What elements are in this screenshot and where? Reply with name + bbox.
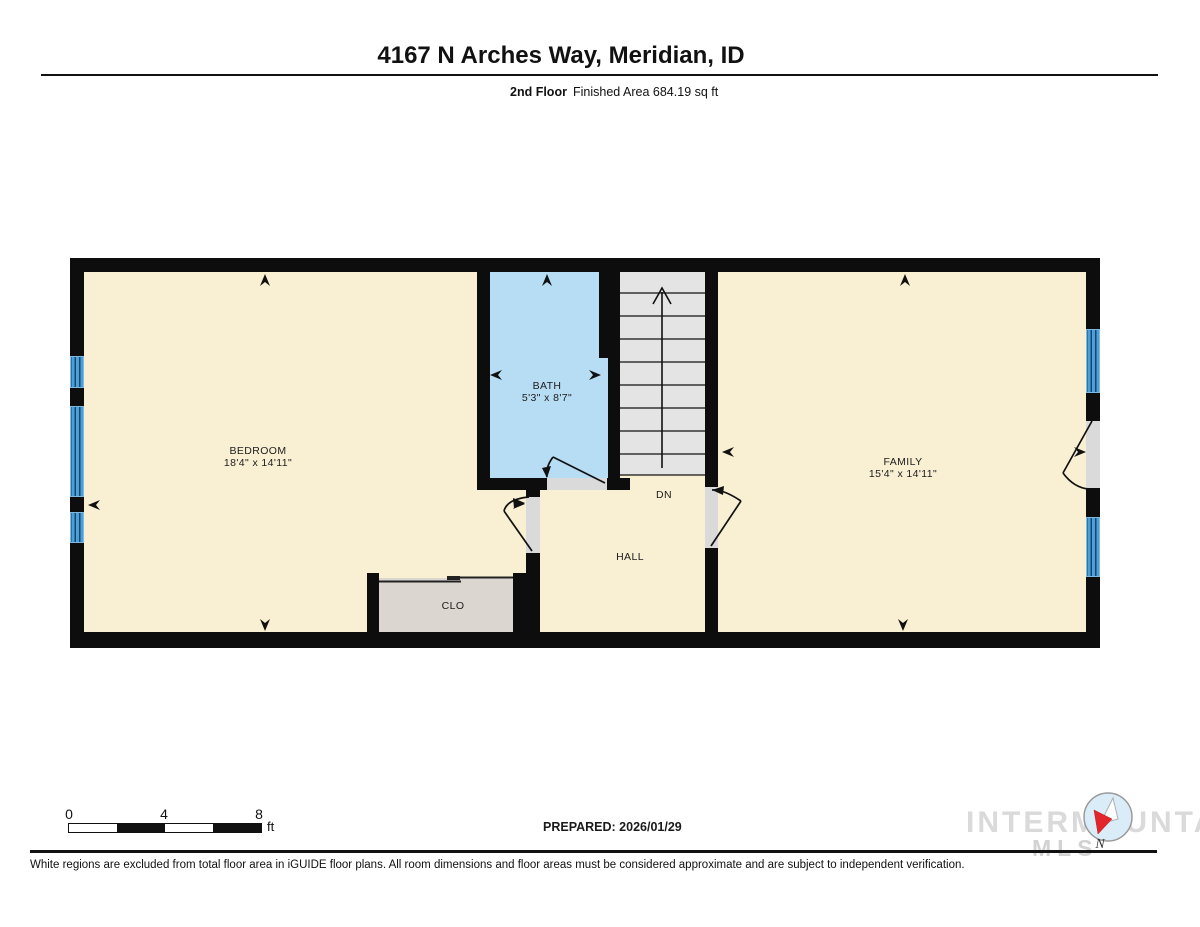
title-divider — [41, 74, 1158, 76]
stairwell-area — [620, 272, 705, 475]
bath-door-opening — [547, 478, 607, 490]
wall-exterior-top — [70, 258, 1100, 272]
bedroom-name: BEDROOM — [224, 446, 292, 458]
wall-closet-left — [367, 573, 379, 632]
bath-dims: 5'3" x 8'7" — [522, 393, 572, 405]
family-dims: 15'4" x 14'11" — [869, 469, 937, 481]
prepared-date-label: PREPARED: 2026/01/29 — [543, 820, 682, 834]
window-bedroom-left-3 — [70, 512, 84, 543]
wall-bedroom-bath — [477, 272, 490, 490]
scale-tick-8: 8 — [255, 806, 263, 822]
window-family-right-2 — [1086, 517, 1100, 577]
family-label: FAMILY 15'4" x 14'11" — [869, 457, 937, 480]
wall-bath-stairs-lower — [608, 358, 620, 490]
window-family-right-1 — [1086, 329, 1100, 393]
wall-closet-right — [513, 573, 526, 632]
family-name: FAMILY — [869, 457, 937, 469]
bedroom-door-opening — [526, 497, 540, 553]
window-bedroom-left-1 — [70, 356, 84, 388]
bedroom-label: BEDROOM 18'4" x 14'11" — [224, 446, 292, 469]
family-door-opening — [705, 487, 718, 548]
bath-label: BATH 5'3" x 8'7" — [522, 381, 572, 404]
bedroom-dims: 18'4" x 14'11" — [224, 458, 292, 470]
wall-exterior-bottom — [70, 632, 1100, 648]
scale-tick-4: 4 — [160, 806, 168, 822]
footer-divider — [30, 850, 1157, 853]
wall-stairs-family — [705, 272, 718, 632]
hall-label: HALL — [616, 552, 644, 564]
finished-area-label: Finished Area 684.19 sq ft — [573, 85, 718, 99]
exterior-door-opening — [1086, 421, 1100, 488]
stairs-dn-label: DN — [656, 490, 672, 502]
floor-label: 2nd Floor — [510, 85, 567, 99]
bath-name: BATH — [522, 381, 572, 393]
scale-tick-0: 0 — [65, 806, 73, 822]
scale-bar — [68, 823, 262, 833]
bath-room-area — [490, 272, 608, 478]
floorplan-page: 4167 N Arches Way, Meridian, ID 2nd Floo… — [0, 0, 1200, 927]
window-bedroom-left-2 — [70, 406, 84, 497]
disclaimer-text: White regions are excluded from total fl… — [30, 859, 965, 871]
scale-unit-label: ft — [267, 819, 274, 834]
wall-bath-stairs-upper — [599, 272, 620, 358]
mls-watermark: MLS — [1032, 835, 1099, 862]
closet-label: CLO — [442, 601, 465, 613]
page-title: 4167 N Arches Way, Meridian, ID — [377, 42, 744, 70]
